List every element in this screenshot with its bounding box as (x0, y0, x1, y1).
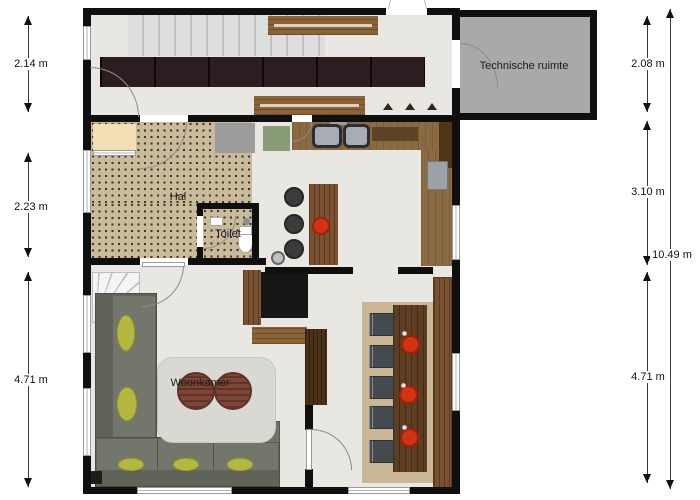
dining-chair (369, 440, 394, 463)
bench-middle-rail (260, 104, 359, 107)
arrow-up-icon (643, 121, 651, 130)
bar-stool (284, 187, 304, 207)
arrow-down-icon (643, 103, 651, 112)
hall-floor-lower (91, 203, 197, 258)
bar-stool (284, 214, 304, 234)
window (83, 150, 91, 213)
stub-wall (305, 405, 313, 430)
shoe-marker (383, 103, 393, 110)
wall-corridor-hall (188, 115, 292, 122)
wall-corridor-kitchen (312, 115, 452, 122)
tech-wall-right (590, 10, 597, 120)
sofa-cushion (117, 315, 135, 351)
doormat-gray (215, 123, 255, 153)
red-plate (401, 335, 420, 354)
cooking-pot (271, 251, 285, 265)
tech-wall-top (452, 10, 597, 17)
arrow-down-icon (24, 248, 32, 257)
dim-label-right-3: 4.71 m (629, 371, 667, 383)
tech-wall-bottom (452, 113, 597, 120)
bar-cabinet (305, 329, 327, 405)
arrow-up-icon (24, 272, 32, 281)
tv-screen (261, 272, 308, 318)
kitchen-sink-left (312, 124, 342, 148)
red-plate (400, 428, 419, 447)
dim-label-right-2: 3.10 m (629, 186, 667, 198)
window (348, 487, 410, 494)
closet-sill (93, 150, 136, 156)
window (452, 205, 460, 260)
tv-bench (252, 327, 307, 344)
tv-unit-side (243, 270, 261, 325)
sofa-cushion (118, 458, 144, 471)
table-dot (402, 425, 407, 430)
arrow-up-icon (643, 272, 651, 281)
dishwasher (427, 161, 448, 190)
sideboard (433, 277, 452, 488)
cooktop (372, 127, 418, 141)
window (83, 388, 91, 456)
arrow-up-icon (666, 9, 674, 18)
toilet-label: Toilet (215, 228, 241, 240)
sofa-divider (157, 437, 158, 470)
window (83, 26, 91, 60)
toilet-wall-left (197, 247, 203, 264)
shoe-marker (405, 103, 415, 110)
dim-label-left-3: 4.71 m (12, 374, 50, 386)
wardrobe (100, 57, 425, 87)
dining-chair (369, 376, 394, 399)
front-door-opening (386, 8, 427, 15)
arrow-down-icon (24, 478, 32, 487)
shoe-marker (427, 103, 437, 110)
arrow-up-icon (24, 153, 32, 162)
wall-kitchen-living (265, 267, 353, 274)
door-leaf (142, 262, 185, 267)
dining-chair (369, 406, 394, 429)
arrow-down-icon (666, 480, 674, 489)
bar-stool (284, 239, 304, 259)
toilet-drain (243, 218, 250, 225)
toilet-wall-right (252, 203, 259, 264)
kitchen-sink-right (343, 124, 370, 148)
bench-top-rail (274, 24, 372, 27)
toilet-wall-top (197, 203, 259, 209)
table-dot (402, 331, 407, 336)
arrow-down-icon (24, 103, 32, 112)
dim-label-left-2: 2.23 m (12, 201, 50, 213)
wall-kitchen-dining (398, 267, 433, 274)
hall-label: Hal (170, 191, 187, 203)
stub-wall (305, 469, 313, 488)
arrow-up-icon (24, 16, 32, 25)
kitchen-mat-green (263, 126, 290, 151)
table-dot (401, 383, 406, 388)
dim-label-left-1: 2.14 m (12, 58, 50, 70)
arrow-down-icon (643, 474, 651, 483)
window (83, 295, 91, 353)
hall-top-door-opening (140, 115, 188, 122)
sofa-cushion (173, 458, 199, 471)
living-room-label: Woonkamer (170, 377, 229, 389)
sofa-cushion (227, 458, 253, 471)
tech-door-opening (452, 40, 460, 88)
technical-room-label: Technische ruimte (480, 60, 569, 72)
dining-chair (369, 345, 394, 368)
doormat-cream (93, 124, 136, 150)
floor-plan: Technische ruimte Hal Toilet Woonkamer 2… (0, 0, 700, 500)
toilet-wall-left (197, 203, 203, 216)
window (137, 487, 232, 494)
kitchen-door-opening (292, 115, 312, 122)
arrow-up-icon (643, 16, 651, 25)
window (452, 353, 460, 411)
dim-label-right-1: 2.08 m (629, 58, 667, 70)
wall-hall-living (83, 258, 140, 265)
dim-label-total: 10.49 m (650, 249, 694, 261)
sofa-cushion (117, 387, 137, 421)
dining-chair (369, 313, 394, 336)
red-bowl (312, 217, 330, 235)
